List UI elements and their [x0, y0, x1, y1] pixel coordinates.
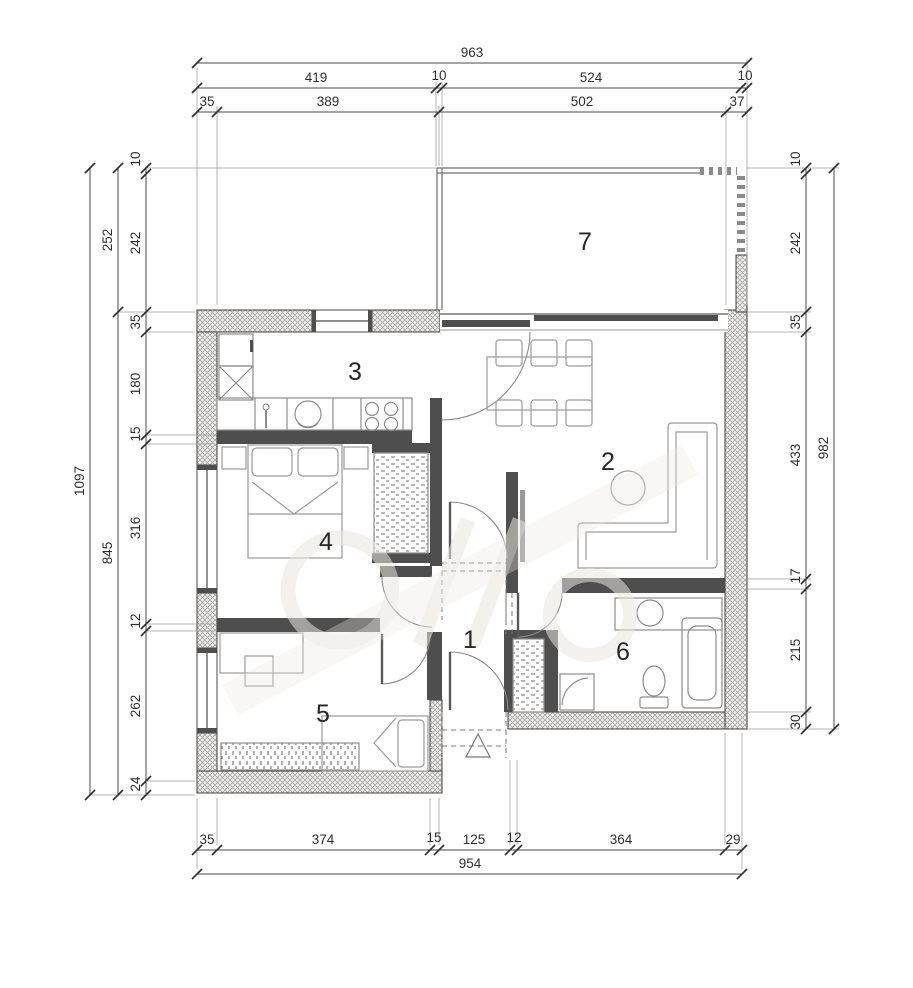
- bathtub-inner: [688, 626, 716, 700]
- dim-left-24: 24: [128, 776, 143, 792]
- dim-right-overall: 982: [816, 437, 831, 460]
- dim-bot-overall: 954: [459, 856, 482, 871]
- dim-left-overall: 1097: [72, 466, 87, 496]
- wall-hall-west-upper: [430, 398, 442, 566]
- sink-tap: [263, 404, 269, 410]
- toilet-tank: [640, 697, 668, 708]
- dim-left-316: 316: [128, 517, 143, 540]
- wall-left-upper: [197, 332, 217, 465]
- dim-right-17: 17: [788, 568, 803, 583]
- stove-burners: [366, 403, 398, 431]
- hall-closet: [513, 639, 544, 712]
- window-top: [312, 310, 372, 332]
- dining-chairs: [496, 340, 592, 426]
- single-bed-fold: [374, 718, 396, 767]
- dim-top-overall: 963: [461, 45, 484, 60]
- dim-left-845: 845: [100, 542, 115, 565]
- fridge-x-mark: [219, 366, 253, 400]
- room-label-3: 3: [348, 358, 362, 386]
- entry-door-arc: [450, 652, 508, 710]
- dining-table: [487, 357, 592, 410]
- wardrobe4-cap-top: [372, 443, 430, 453]
- dim-left-15: 15: [128, 426, 143, 441]
- sink-bowl: [295, 401, 321, 427]
- wall-room5-right: [430, 700, 442, 771]
- wall-kitchen: [217, 430, 412, 444]
- room-label-5: 5: [316, 700, 330, 728]
- wall-terrace-stub: [736, 255, 747, 312]
- dim-right-30: 30: [788, 714, 803, 729]
- dim-left-262: 262: [128, 695, 143, 718]
- room-label-6: 6: [616, 638, 630, 666]
- wall-bottom-left: [197, 771, 442, 793]
- wall-left-mid: [197, 593, 217, 648]
- floor-plan-svg: 1 2 3 4 5 6 7 963 419 10 5: [0, 0, 913, 988]
- dim-bot-125: 125: [463, 832, 486, 847]
- dim-left-242: 242: [128, 232, 143, 255]
- duvet-fold: [248, 482, 342, 514]
- toilet-bowl: [643, 666, 665, 696]
- balcony-door-leaf: [442, 320, 530, 327]
- dim-left-12: 12: [128, 613, 143, 628]
- washing-machine-door-arc: [562, 678, 588, 705]
- room-label-1: 1: [463, 626, 477, 654]
- wall-top-mid: [372, 310, 440, 332]
- terrace-railing-top: [437, 168, 700, 173]
- balcony-door-arc: [442, 332, 530, 420]
- nightstand-left: [222, 447, 246, 469]
- dim-bot-374: 374: [312, 832, 335, 847]
- nightstand-right: [344, 447, 368, 469]
- dim-bot-364: 364: [610, 832, 633, 847]
- counter-dividers: [255, 398, 403, 430]
- closet-frame-left: [504, 630, 513, 712]
- dim-top-10b: 10: [737, 68, 752, 83]
- dim-right-433: 433: [788, 444, 803, 467]
- terrace-sliding-door: [440, 310, 728, 332]
- washbasin: [637, 600, 663, 626]
- window-left-room5: [197, 648, 217, 733]
- dim-left-10: 10: [128, 151, 143, 166]
- terrace-railing-left: [437, 168, 442, 310]
- wall-top-left: [197, 310, 312, 332]
- dim-left-252: 252: [100, 229, 115, 252]
- dim-top-389: 389: [317, 94, 340, 109]
- dim-right-242: 242: [788, 232, 803, 255]
- dim-top-502: 502: [571, 94, 594, 109]
- room-label-4: 4: [319, 528, 333, 556]
- dim-bot-15: 15: [426, 830, 441, 845]
- window-left-room4: [197, 465, 217, 593]
- wardrobe-room4: [374, 453, 428, 553]
- dim-top-37: 37: [729, 94, 744, 109]
- wall-right: [725, 310, 747, 729]
- entry-threshold-dashed: [442, 712, 506, 758]
- cabinet-handle: [250, 340, 253, 352]
- single-bed-pillow: [398, 720, 424, 767]
- room-label-7: 7: [578, 228, 592, 256]
- dim-left-180: 180: [128, 373, 143, 396]
- dim-right-215: 215: [788, 639, 803, 662]
- dim-left-35: 35: [128, 314, 143, 329]
- wall-bottom-bath: [508, 712, 747, 729]
- pillow-right: [298, 448, 338, 476]
- room-label-2: 2: [601, 448, 615, 476]
- dim-top-10a: 10: [431, 68, 446, 83]
- dim-bot-35: 35: [199, 832, 214, 847]
- kitchen-tall-cabinet: [219, 334, 253, 366]
- dim-bot-29: 29: [725, 832, 740, 847]
- dim-top-524: 524: [580, 70, 603, 85]
- kitchen-furniture: [217, 334, 412, 431]
- pillow-left: [252, 448, 292, 476]
- dim-bot-12: 12: [506, 830, 521, 845]
- floor-plan-page: 1 2 3 4 5 6 7 963 419 10 5: [0, 0, 913, 988]
- dim-top-35: 35: [199, 94, 214, 109]
- dim-top-419: 419: [305, 70, 328, 85]
- dim-right-35: 35: [788, 314, 803, 329]
- sliding-panel: [534, 315, 718, 321]
- wardrobe-room5: [221, 743, 359, 770]
- dim-right-10: 10: [788, 151, 803, 166]
